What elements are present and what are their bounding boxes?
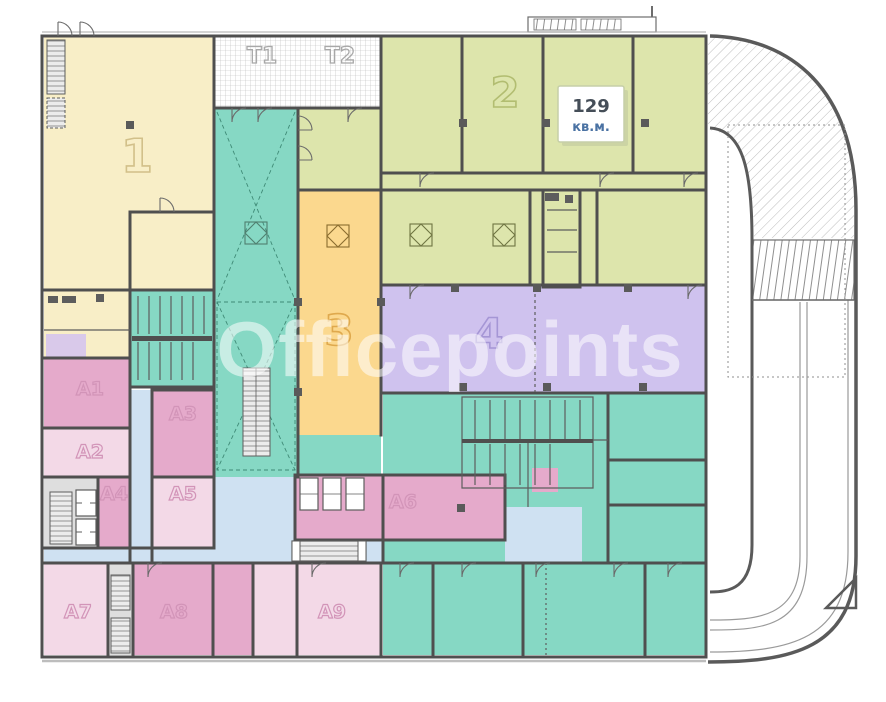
ramp-lane-line-mid2 [710, 302, 807, 630]
unit-a3-label: A3 [169, 403, 197, 425]
zone-2-label: 2 [490, 68, 519, 117]
unit-a7-label: A7 [64, 601, 92, 623]
ramp-inner-curve [710, 128, 752, 592]
unit-a5-label: A5 [169, 483, 197, 505]
ramp-lane-line-mid1 [710, 302, 800, 620]
unit-a6-label: A6 [389, 491, 417, 513]
wc-wall-band-2 [462, 439, 593, 443]
zone-t2-label: T2 [325, 44, 355, 69]
wc-wall-band [132, 336, 212, 341]
corridor-right-stub [505, 507, 582, 563]
floorplan-svg: 1 T1 T2 2 3 4 A1 A2 A3 A4 A5 A6 A7 A8 A9… [0, 0, 886, 702]
unit-a4-label: A4 [100, 483, 128, 505]
ramp-lane-line-outer [710, 300, 848, 652]
ramp-slat-band [752, 240, 854, 300]
area-badge[interactable]: 129 кв.м. [558, 86, 628, 146]
room-pink-2 [253, 563, 297, 655]
zone-t-terrace[interactable] [214, 36, 381, 108]
roof-hatch-2 [581, 19, 621, 30]
travelator-icon [292, 541, 366, 561]
unit-a9-label: A9 [318, 601, 346, 623]
roof-structure [42, 6, 706, 32]
unit-a2-label: A2 [76, 441, 104, 463]
corridor-lobby [214, 477, 295, 563]
teal-band [298, 435, 381, 477]
watermark: Officepoints [216, 305, 683, 393]
zone-t1-label: T1 [247, 44, 277, 69]
badge-area-value: 129 [572, 96, 610, 117]
elevator-bank [300, 478, 364, 510]
teal-bottom-rooms [383, 563, 706, 655]
unit-a8-label: A8 [160, 601, 188, 623]
stair-icon [50, 492, 72, 544]
corridor-vertical [130, 390, 152, 563]
small-room [46, 334, 86, 358]
unit-a1-label: A1 [76, 378, 104, 400]
badge-area-unit: кв.м. [572, 120, 610, 135]
floorplan-canvas: 1 T1 T2 2 3 4 A1 A2 A3 A4 A5 A6 A7 A8 A9… [0, 0, 886, 702]
zone-2-wing [298, 108, 381, 190]
parking-ramp [708, 36, 856, 662]
roof-hatch-1 [534, 19, 576, 30]
room-pink-1 [213, 563, 253, 655]
zone-1-label: 1 [121, 129, 153, 183]
stair-icon [47, 40, 65, 128]
